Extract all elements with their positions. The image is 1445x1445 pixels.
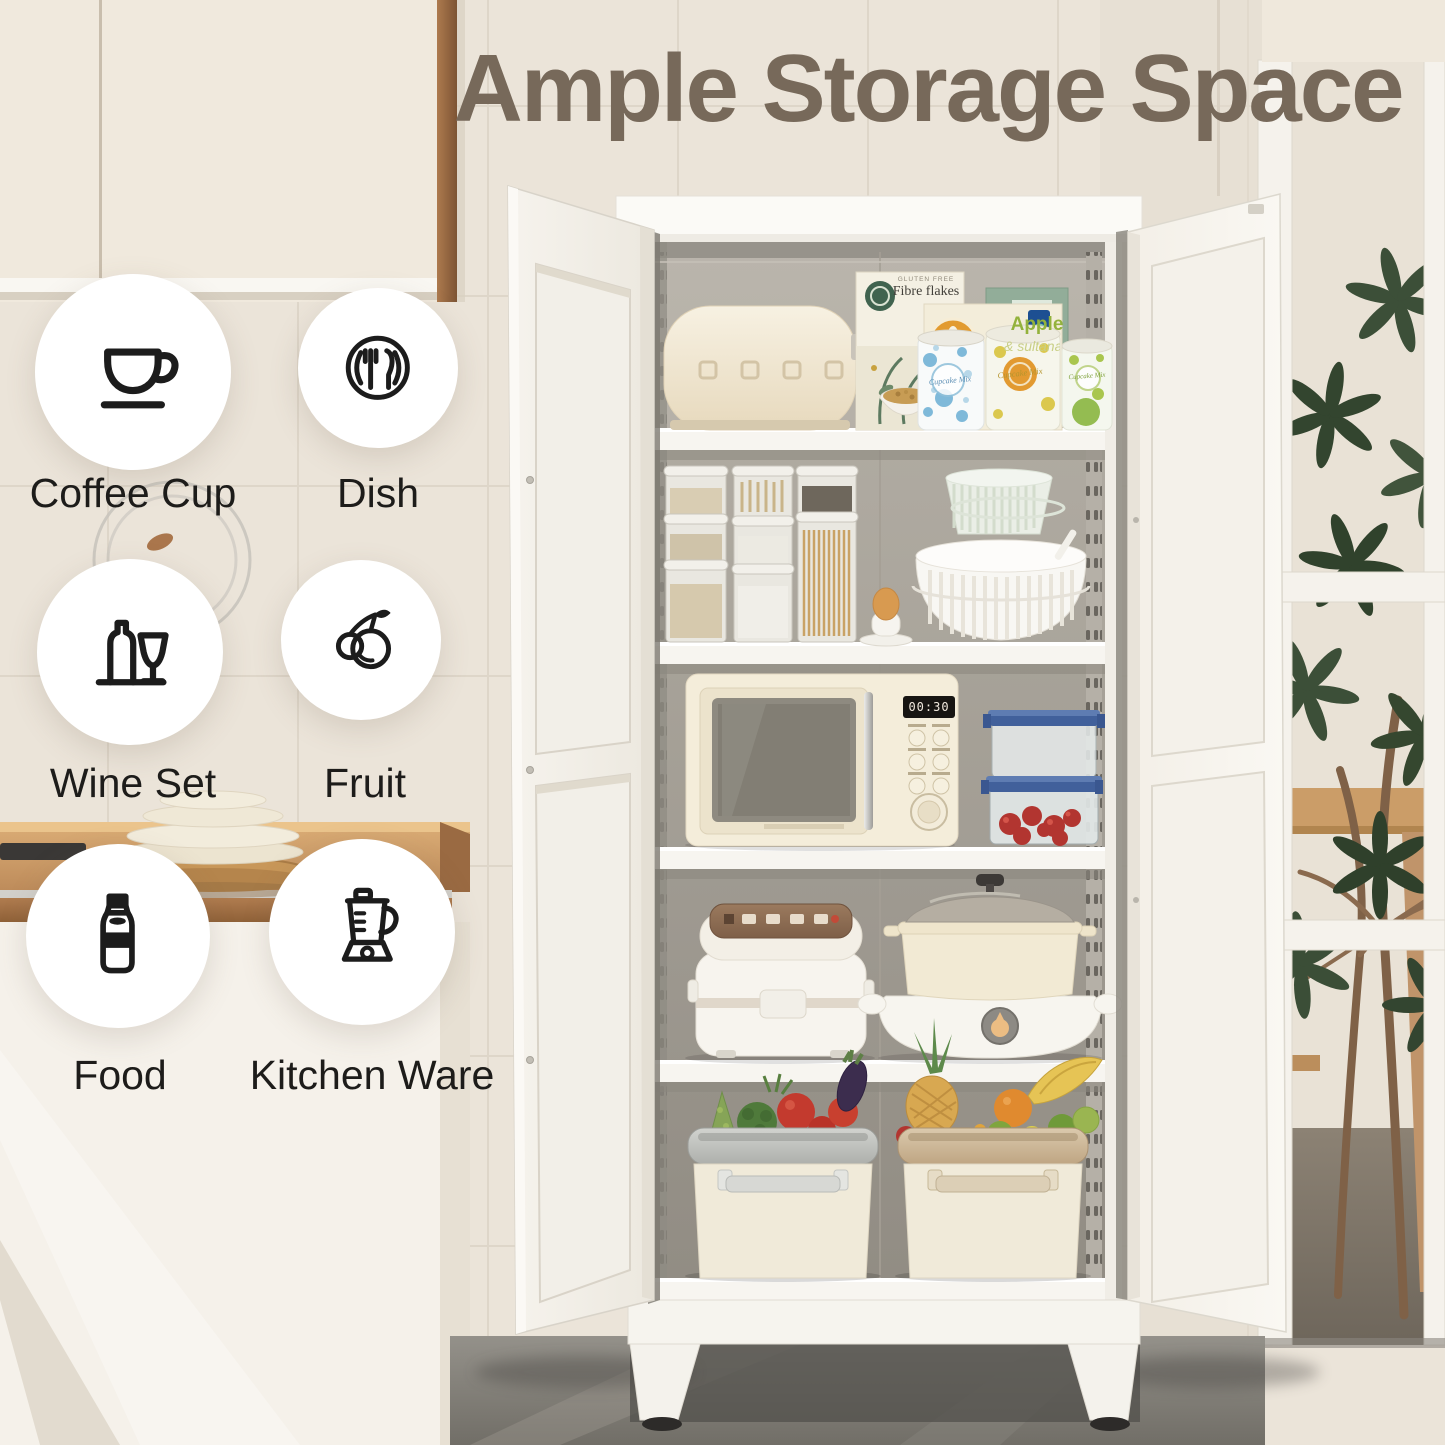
upper-cabinet <box>0 0 465 302</box>
cereal-box-name: Fibre flakes <box>888 284 964 300</box>
feature-badge-coffee-cup <box>35 274 231 470</box>
microwave-display-text: 00:30 <box>905 697 953 717</box>
feature-label-food: Food <box>73 1052 166 1099</box>
product-marketing-image: Ample Storage Space Coffee Cup Dish Wine… <box>0 0 1445 1445</box>
cereal-box-tag: GLUTEN FREE <box>892 276 960 283</box>
mix-can-green <box>1062 339 1112 430</box>
microwave-handle <box>864 692 873 830</box>
wine-set-icon <box>78 600 182 704</box>
left-door-open <box>508 186 654 1334</box>
feature-badge-wine-set <box>37 559 223 745</box>
rice-cooker <box>688 904 874 1058</box>
blender-icon <box>310 880 414 984</box>
concrete-floor <box>450 1336 1320 1445</box>
food-bottle-icon <box>66 884 169 987</box>
feature-label-kitchen-ware: Kitchen Ware <box>250 1052 495 1099</box>
right-door-open <box>1128 194 1286 1332</box>
coffee-cup-icon <box>78 317 188 427</box>
food-canisters <box>664 466 858 642</box>
mix-box-line1: Apple <box>1002 314 1072 336</box>
feature-label-dish: Dish <box>337 470 419 517</box>
fruit-icon <box>316 595 406 685</box>
page-title: Ample Storage Space <box>454 34 1403 144</box>
feature-badge-fruit <box>281 560 441 720</box>
feature-label-coffee-cup: Coffee Cup <box>30 470 237 517</box>
glass-containers <box>981 710 1105 846</box>
feature-badge-food <box>26 844 210 1028</box>
dish-icon <box>333 323 423 413</box>
mix-box-line2: & sultana <box>1004 338 1060 354</box>
feature-label-wine-set: Wine Set <box>50 760 216 807</box>
feature-badge-kitchen-ware <box>269 839 455 1025</box>
feature-badge-dish <box>298 288 458 448</box>
feature-label-fruit: Fruit <box>324 760 406 807</box>
kitchen-photo <box>0 0 1445 1445</box>
